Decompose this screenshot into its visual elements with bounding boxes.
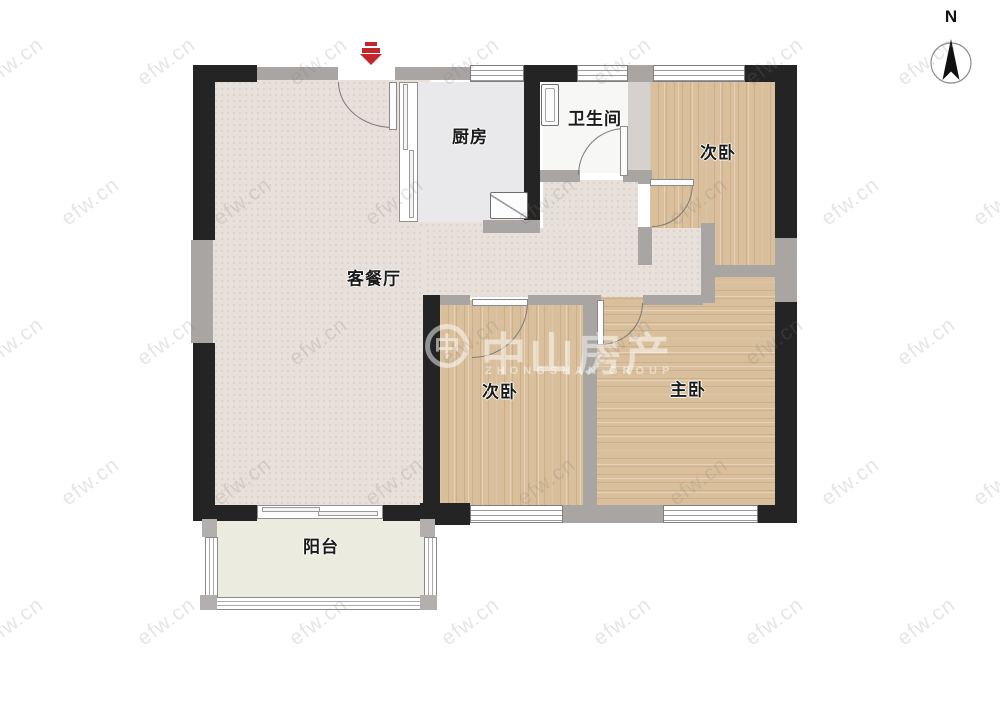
watermark-tile: efw.cn: [817, 453, 884, 511]
wall-top-gray-left: [257, 67, 338, 80]
master-bedroom-label: 主卧: [670, 376, 706, 401]
compass: N: [915, 5, 990, 95]
balcony-frame-right: [424, 537, 437, 597]
wall-right-lower: [775, 302, 797, 523]
watermark-tile: efw.cn: [133, 593, 200, 651]
watermark-tile: efw.cn: [133, 33, 200, 91]
wall-kitchen-bottom: [483, 220, 540, 233]
entry-marker-arrow-icon: [360, 54, 382, 65]
watermark-tile: efw.cn: [57, 173, 124, 231]
balcony-frame-bottom: [205, 597, 437, 610]
wall-right-upper: [775, 65, 797, 238]
entry-marker-icon: [362, 48, 380, 53]
watermark-tile: efw.cn: [741, 593, 808, 651]
wall-left-upper: [193, 65, 215, 240]
bedroom-bl-window: [470, 505, 563, 523]
watermark-tile: efw.cn: [969, 173, 1000, 231]
balcony-sliding-panel: [262, 507, 320, 512]
floorplan-canvas: 厨房 卫生间 次卧 客餐厅 次卧 主卧 阳台 N 中 中山房产 ZHONGSHA…: [0, 0, 1000, 709]
wall-corridor-bottom-3: [643, 295, 703, 305]
balcony-corner-block: [202, 519, 217, 537]
wall-bathroom-bottom-left: [540, 170, 580, 182]
wall-bathroom-bedroom-divider: [628, 82, 650, 170]
watermark-tile: efw.cn: [0, 313, 48, 371]
north-arrow-icon: [915, 25, 990, 95]
wall-left-lower: [193, 343, 215, 521]
master-door-leaf: [597, 300, 604, 345]
kitchen-label: 厨房: [452, 123, 488, 148]
wall-balcony-top-right: [383, 505, 423, 521]
balcony-floor: [211, 519, 426, 599]
corridor-floor: [425, 228, 703, 297]
wall-left-gray-segment: [191, 240, 213, 343]
kitchen-window: [470, 65, 524, 82]
balcony-corner-block: [200, 595, 217, 610]
bedroom-top-right-label: 次卧: [700, 139, 736, 164]
balcony-sliding-panel: [318, 511, 378, 516]
bedroom-tr-door-leaf: [650, 179, 694, 186]
wall-bottom-right-corner: [758, 505, 797, 523]
kitchen-counter: [490, 192, 528, 219]
bathroom-label: 卫生间: [568, 105, 622, 130]
corridor-floor-upper: [543, 180, 638, 228]
bathroom-sink: [541, 84, 559, 126]
watermark-tile: efw.cn: [57, 453, 124, 511]
north-label: N: [945, 7, 957, 27]
entry-door-leaf: [389, 82, 397, 130]
balcony-corner-block: [420, 595, 437, 610]
wall-living-bedroom-divider: [423, 295, 440, 507]
watermark-tile: efw.cn: [817, 173, 884, 231]
watermark-tile: efw.cn: [893, 313, 960, 371]
bedroom-bl-door-leaf: [472, 299, 528, 306]
living-dining-floor: [213, 80, 430, 507]
watermark-tile: efw.cn: [0, 593, 48, 651]
balcony-frame-left: [205, 537, 218, 597]
wall-bedroom-tr-left-lower: [638, 227, 652, 265]
wall-bottom-middle-pier: [563, 505, 663, 523]
bathroom-window: [577, 65, 628, 82]
kitchen-opening-floor: [418, 222, 483, 230]
balcony-corner-block: [420, 519, 435, 537]
bathroom-door-leaf: [620, 126, 628, 176]
wall-bedrooms-divider: [583, 300, 597, 507]
wall-corridor-block: [701, 223, 715, 303]
watermark-tile: efw.cn: [893, 593, 960, 651]
balcony-label: 阳台: [303, 533, 339, 558]
wall-top-gray-pier: [628, 65, 653, 82]
watermark-tile: efw.cn: [437, 593, 504, 651]
watermark-tile: efw.cn: [969, 453, 1000, 511]
entry-marker-icon: [365, 42, 377, 46]
watermark-tile: efw.cn: [589, 593, 656, 651]
wall-right-gray-segment: [775, 238, 797, 302]
wall-bedroom-tr-bottom: [713, 265, 775, 277]
bathroom-sink-basin: [545, 88, 555, 122]
living-dining-label: 客餐厅: [347, 265, 401, 290]
wall-top-gray-right-of-entry: [395, 67, 470, 80]
kitchen-sliding-panel: [403, 84, 408, 150]
bedroom-bottom-left-label: 次卧: [482, 378, 518, 403]
watermark-tile: efw.cn: [0, 33, 48, 91]
kitchen-sliding-panel: [409, 150, 414, 218]
wall-corridor-bottom-1: [440, 295, 470, 305]
wall-top-middle: [524, 65, 577, 82]
bedroom-tr-window: [653, 65, 745, 82]
master-bedroom-window: [663, 505, 758, 523]
